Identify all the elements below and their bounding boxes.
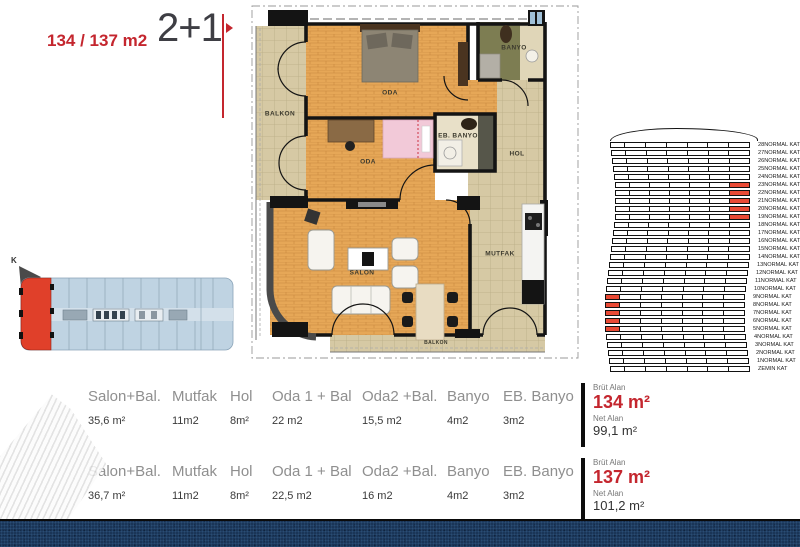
elevation-floor-row: 26NORMAL KAT bbox=[596, 157, 800, 165]
elevation-unit-cell bbox=[625, 151, 646, 155]
elevation-unit-cell bbox=[707, 255, 728, 259]
elevation-unit-cell bbox=[729, 167, 749, 171]
elevation-unit-cell bbox=[664, 351, 685, 355]
elevation-unit-cell bbox=[619, 327, 640, 331]
elevation-unit-cell bbox=[622, 271, 643, 275]
elevation-unit-cell bbox=[729, 239, 750, 243]
elevation-unit-cell bbox=[611, 143, 624, 147]
spec-column-value: 36,7 m² bbox=[88, 490, 172, 502]
elevation-unit-cell bbox=[689, 191, 709, 195]
elevation-unit-cell bbox=[668, 175, 688, 179]
elevation-unit-cell bbox=[709, 207, 729, 211]
room-label-mutfak: MUTFAK bbox=[485, 251, 514, 258]
spec-column: Oda 1 + Bal22 m2 bbox=[272, 388, 362, 427]
elevation-unit-cell bbox=[706, 263, 727, 267]
elevation-unit-cell bbox=[702, 295, 723, 299]
elevation-unit-cell bbox=[642, 279, 663, 283]
elevation-unit-cell bbox=[688, 239, 709, 243]
elevation-unit-cell bbox=[729, 183, 749, 187]
elevation-unit-cell bbox=[616, 191, 629, 195]
elevation-unit-cell bbox=[702, 319, 723, 323]
elevation-unit-cell bbox=[724, 287, 745, 291]
elevation-unit-cell bbox=[669, 183, 689, 187]
brochure-page: 134 / 137 m2 2+1 bbox=[0, 0, 800, 547]
elevation-unit-cell bbox=[649, 199, 669, 203]
room-label-balkon-left: BALKON bbox=[265, 111, 295, 118]
elevation-floor-label: 16NORMAL KAT bbox=[758, 238, 800, 244]
elevation-unit-cell bbox=[625, 247, 646, 251]
elevation-unit-cell bbox=[611, 367, 624, 371]
elevation-unit-cell bbox=[723, 311, 744, 315]
net-alan-label: Net Alan bbox=[593, 414, 650, 423]
elevation-unit-cell bbox=[729, 191, 749, 195]
elevation-unit-cell bbox=[669, 199, 689, 203]
elevation-unit-cell bbox=[668, 231, 688, 235]
elevation-floor-label: ZEMIN KAT bbox=[758, 366, 787, 372]
elevation-unit-cell bbox=[666, 247, 687, 251]
brut-alan-value: 134 m² bbox=[593, 392, 650, 412]
elevation-floor-label: 3NORMAL KAT bbox=[755, 342, 794, 348]
bed-oda-mid bbox=[383, 120, 433, 158]
elevation-unit-cell bbox=[621, 279, 642, 283]
elevation-floor-label: 24NORMAL KAT bbox=[758, 174, 800, 180]
elevation-unit-cell bbox=[725, 343, 746, 347]
brut-alan-label: Brüt Alan bbox=[593, 383, 650, 392]
elevation-unit-cell bbox=[666, 255, 687, 259]
elevation-floor-label: 1NORMAL KAT bbox=[757, 358, 796, 364]
elevation-unit-cell bbox=[682, 295, 703, 299]
spec-column-header: Hol bbox=[230, 388, 272, 405]
elevation-diagram: 28NORMAL KAT27NORMAL KAT26NORMAL KAT25NO… bbox=[596, 128, 800, 373]
spec-column-header: EB. Banyo bbox=[503, 463, 583, 480]
spec-column-header: Salon+Bal. bbox=[88, 388, 172, 405]
elevation-unit-cell bbox=[709, 191, 729, 195]
elevation-floor-row: 3NORMAL KAT bbox=[596, 341, 800, 349]
site-key-plan: K bbox=[5, 256, 240, 360]
spec-column: Oda2 +Bal.15,5 m2 bbox=[362, 388, 447, 427]
elevation-unit-cell bbox=[725, 279, 746, 283]
elevation-unit-cell bbox=[648, 223, 668, 227]
room-label-hol: HOL bbox=[510, 151, 525, 158]
elevation-unit-cell bbox=[727, 263, 748, 267]
elevation-unit-cell bbox=[611, 255, 624, 259]
elevation-unit-cell bbox=[616, 183, 629, 187]
elevation-unit-cell bbox=[689, 223, 709, 227]
elevation-unit-cell bbox=[687, 255, 708, 259]
elevation-floor-label: 28NORMAL KAT bbox=[758, 142, 800, 148]
floor-plan-drawing bbox=[250, 4, 580, 362]
elevation-unit-cell bbox=[643, 351, 664, 355]
elevation-floor-label: 27NORMAL KAT bbox=[758, 150, 800, 156]
elevation-unit-cell bbox=[666, 151, 687, 155]
elevation-unit-cell bbox=[619, 311, 640, 315]
spec-column-value: 22 m2 bbox=[272, 415, 362, 427]
spec-column: Salon+Bal.35,6 m² bbox=[88, 388, 172, 427]
elevation-floor-row: 10NORMAL KAT bbox=[596, 285, 800, 293]
room-label-oda-mid: ODA bbox=[360, 159, 376, 166]
site-key-plan-drawing bbox=[5, 256, 240, 360]
spec-column-value: 3m2 bbox=[503, 490, 583, 502]
elevation-unit-cell bbox=[615, 175, 628, 179]
elevation-unit-cell bbox=[619, 319, 640, 323]
elevation-unit-cell bbox=[622, 351, 643, 355]
elevation-floor-row: 23NORMAL KAT bbox=[596, 181, 800, 189]
elevation-unit-cell bbox=[707, 367, 728, 371]
elevation-unit-cell bbox=[727, 359, 748, 363]
wardrobe bbox=[458, 42, 468, 86]
elevation-unit-cell bbox=[687, 367, 708, 371]
spec-column-header: Banyo bbox=[447, 388, 503, 405]
spec-column-value: 3m2 bbox=[503, 415, 583, 427]
room-label-oda-top: ODA bbox=[382, 90, 398, 97]
elevation-floor-row: 5NORMAL KAT bbox=[596, 325, 800, 333]
elevation-unit-cell bbox=[669, 207, 689, 211]
spec-table-137: Salon+Bal.36,7 m²Mutfak11m2Hol8m²Oda 1 +… bbox=[88, 463, 788, 502]
elevation-unit-cell bbox=[626, 239, 647, 243]
elevation-unit-cell bbox=[663, 279, 684, 283]
net-alan-value: 99,1 m² bbox=[593, 423, 650, 438]
elevation-floor-label: 2NORMAL KAT bbox=[756, 350, 795, 356]
spec-column: Mutfak11m2 bbox=[172, 463, 230, 502]
elevation-floor-label: 6NORMAL KAT bbox=[753, 318, 792, 324]
spec-column-value: 22,5 m2 bbox=[272, 490, 362, 502]
elevation-unit-cell bbox=[661, 311, 682, 315]
elevation-unit-cell bbox=[647, 167, 667, 171]
elevation-floor-row: 17NORMAL KAT bbox=[596, 229, 800, 237]
elevation-unit-cell bbox=[684, 279, 705, 283]
elevation-unit-cell bbox=[645, 255, 666, 259]
elevation-unit-cell bbox=[609, 351, 622, 355]
elevation-unit-cell bbox=[620, 335, 641, 339]
elevation-unit-cell bbox=[646, 151, 667, 155]
elevation-floor-label: 15NORMAL KAT bbox=[758, 246, 800, 252]
elevation-unit-cell bbox=[621, 343, 642, 347]
elevation-unit-cell bbox=[616, 215, 629, 219]
elevation-floor-label: 22NORMAL KAT bbox=[758, 190, 800, 196]
highlighted-unit bbox=[21, 278, 51, 350]
elevation-unit-cell bbox=[610, 263, 623, 267]
bed-oda-top bbox=[360, 24, 420, 82]
elevation-floor-row: ZEMIN KAT bbox=[596, 365, 800, 373]
accent-vertical-line bbox=[222, 14, 224, 118]
elevation-unit-cell bbox=[702, 327, 723, 331]
elevation-unit-cell bbox=[726, 351, 747, 355]
elevation-unit-cell bbox=[687, 151, 708, 155]
elevation-unit-cell bbox=[684, 343, 705, 347]
spec-column: EB. Banyo3m2 bbox=[503, 388, 583, 427]
accent-arrow-icon bbox=[226, 23, 233, 33]
elevation-unit-cell bbox=[688, 231, 708, 235]
spec-column-header: EB. Banyo bbox=[503, 388, 583, 405]
elevation-unit-cell bbox=[641, 287, 662, 291]
spec-column-value: 11m2 bbox=[172, 490, 230, 502]
room-label-salon: SALON bbox=[350, 270, 375, 277]
elevation-unit-cell bbox=[729, 223, 749, 227]
elevation-unit-cell bbox=[627, 231, 647, 235]
elevation-unit-cell bbox=[629, 183, 649, 187]
elevation-unit-cell bbox=[616, 199, 629, 203]
elevation-unit-cell bbox=[689, 175, 709, 179]
elevation-unit-cell bbox=[709, 183, 729, 187]
elevation-unit-cell bbox=[705, 351, 726, 355]
elevation-floor-row: 28NORMAL KAT bbox=[596, 141, 800, 149]
elevation-floor-label: 9NORMAL KAT bbox=[753, 294, 792, 300]
elevation-unit-cell bbox=[649, 215, 669, 219]
elevation-floor-row: 27NORMAL KAT bbox=[596, 149, 800, 157]
elevation-unit-cell bbox=[667, 159, 688, 163]
net-alan-label: Net Alan bbox=[593, 489, 650, 498]
elevation-unit-cell bbox=[661, 327, 682, 331]
elevation-unit-cell bbox=[729, 159, 750, 163]
elevation-floor-label: 11NORMAL KAT bbox=[755, 278, 797, 284]
elevation-unit-cell bbox=[689, 215, 709, 219]
elevation-unit-cell bbox=[624, 255, 645, 259]
elevation-unit-cell bbox=[723, 327, 744, 331]
elevation-floor-row: 6NORMAL KAT bbox=[596, 317, 800, 325]
brut-alan-value: 137 m² bbox=[593, 467, 650, 487]
spec-column: Banyo4m2 bbox=[447, 463, 503, 502]
elevation-unit-cell bbox=[668, 223, 688, 227]
elevation-unit-cell bbox=[702, 311, 723, 315]
elevation-floor-row: 21NORMAL KAT bbox=[596, 197, 800, 205]
spec-columns: Salon+Bal.36,7 m²Mutfak11m2Hol8m²Oda 1 +… bbox=[88, 463, 788, 502]
spec-column: Oda2 +Bal.16 m2 bbox=[362, 463, 447, 502]
spec-column: Hol8m² bbox=[230, 463, 272, 502]
elevation-unit-cell bbox=[682, 303, 703, 307]
elevation-unit-cell bbox=[729, 231, 749, 235]
elevation-unit-cell bbox=[702, 303, 723, 307]
elevation-floor-label: 17NORMAL KAT bbox=[758, 230, 800, 236]
elevation-floor-label: 21NORMAL KAT bbox=[758, 198, 800, 204]
spec-column-value: 16 m2 bbox=[362, 490, 447, 502]
elevation-unit-cell bbox=[606, 327, 619, 331]
spec-column-header: Mutfak bbox=[172, 388, 230, 405]
elevation-floor-row: 2NORMAL KAT bbox=[596, 349, 800, 357]
elevation-unit-cell bbox=[667, 239, 688, 243]
elevation-unit-cell bbox=[640, 311, 661, 315]
elevation-unit-cell bbox=[723, 303, 744, 307]
elevation-floor-row: 25NORMAL KAT bbox=[596, 165, 800, 173]
elevation-unit-cell bbox=[728, 143, 749, 147]
elevation-unit-cell bbox=[723, 295, 744, 299]
elevation-floor-row: 22NORMAL KAT bbox=[596, 189, 800, 197]
elevation-rows: 28NORMAL KAT27NORMAL KAT26NORMAL KAT25NO… bbox=[596, 141, 800, 373]
elevation-floor-row: 19NORMAL KAT bbox=[596, 213, 800, 221]
elevation-unit-cell bbox=[649, 183, 669, 187]
elevation-floor-row: 18NORMAL KAT bbox=[596, 221, 800, 229]
elevation-floor-label: 18NORMAL KAT bbox=[758, 222, 800, 228]
elevation-roof-cap bbox=[610, 128, 758, 141]
elevation-unit-cell bbox=[708, 239, 729, 243]
elevation-unit-cell bbox=[647, 239, 668, 243]
spec-column-value: 4m2 bbox=[447, 490, 503, 502]
elevation-unit-cell bbox=[687, 247, 708, 251]
elevation-unit-cell bbox=[606, 295, 619, 299]
spec-columns: Salon+Bal.35,6 m²Mutfak11m2Hol8m²Oda 1 +… bbox=[88, 388, 788, 427]
elevation-unit-cell bbox=[612, 151, 625, 155]
elevation-unit-cell bbox=[687, 143, 708, 147]
elevation-unit-cell bbox=[685, 351, 706, 355]
elevation-unit-cell bbox=[619, 295, 640, 299]
elevation-unit-cell bbox=[729, 199, 749, 203]
elevation-unit-cell bbox=[708, 231, 728, 235]
elevation-unit-cell bbox=[709, 215, 729, 219]
elevation-floor-label: 26NORMAL KAT bbox=[758, 158, 800, 164]
elevation-floor-row: 1NORMAL KAT bbox=[596, 357, 800, 365]
elevation-unit-cell bbox=[726, 271, 747, 275]
elevation-unit-cell bbox=[669, 191, 689, 195]
elevation-unit-cell bbox=[623, 359, 644, 363]
elevation-floor-label: 25NORMAL KAT bbox=[758, 166, 800, 172]
spec-column-value: 35,6 m² bbox=[88, 415, 172, 427]
spec-column: Oda 1 + Bal22,5 m2 bbox=[272, 463, 362, 502]
elevation-floor-row: 16NORMAL KAT bbox=[596, 237, 800, 245]
elevation-unit-cell bbox=[728, 247, 749, 251]
elevation-unit-cell bbox=[723, 319, 744, 323]
elevation-unit-cell bbox=[724, 335, 745, 339]
elevation-unit-cell bbox=[703, 335, 724, 339]
room-label-banyo: BANYO bbox=[501, 45, 526, 52]
elevation-unit-cell bbox=[629, 199, 649, 203]
elevation-floor-label: 23NORMAL KAT bbox=[758, 182, 800, 188]
elevation-unit-cell bbox=[686, 359, 707, 363]
elevation-floor-label: 19NORMAL KAT bbox=[758, 214, 800, 220]
spec-column: EB. Banyo3m2 bbox=[503, 463, 583, 502]
elevation-unit-cell bbox=[610, 359, 623, 363]
elevation-unit-cell bbox=[707, 143, 728, 147]
elevation-unit-cell bbox=[649, 207, 669, 211]
elevation-floor-row: 14NORMAL KAT bbox=[596, 253, 800, 261]
elevation-unit-cell bbox=[629, 215, 649, 219]
elevation-unit-cell bbox=[624, 143, 645, 147]
elevation-unit-cell bbox=[640, 303, 661, 307]
elevation-floor-label: 8NORMAL KAT bbox=[753, 302, 792, 308]
elevation-unit-cell bbox=[608, 343, 621, 347]
spec-column-value: 11m2 bbox=[172, 415, 230, 427]
elevation-unit-cell bbox=[619, 303, 640, 307]
elevation-unit-cell bbox=[646, 247, 667, 251]
elevation-floor-row: 15NORMAL KAT bbox=[596, 245, 800, 253]
elevation-unit-cell bbox=[729, 175, 749, 179]
elevation-unit-cell bbox=[628, 223, 648, 227]
elevation-unit-cell bbox=[606, 303, 619, 307]
elevation-unit-cell bbox=[682, 311, 703, 315]
footer-bar bbox=[0, 519, 800, 547]
elevation-unit-cell bbox=[628, 175, 648, 179]
elevation-unit-cell bbox=[644, 263, 665, 267]
spec-column: Banyo4m2 bbox=[447, 388, 503, 427]
spec-column-header: Mutfak bbox=[172, 463, 230, 480]
elevation-unit-cell bbox=[666, 143, 687, 147]
elevation-unit-cell bbox=[729, 207, 749, 211]
elevation-floor-row: 11NORMAL KAT bbox=[596, 277, 800, 285]
elevation-unit-cell bbox=[704, 343, 725, 347]
elevation-unit-cell bbox=[607, 335, 620, 339]
elevation-unit-cell bbox=[661, 303, 682, 307]
elevation-floor-row: 24NORMAL KAT bbox=[596, 173, 800, 181]
elevation-unit-cell bbox=[708, 151, 729, 155]
elevation-unit-cell bbox=[615, 223, 628, 227]
spec-column-header: Oda2 +Bal. bbox=[362, 388, 447, 405]
brut-alan-label: Brüt Alan bbox=[593, 458, 650, 467]
elevation-floor-row: 12NORMAL KAT bbox=[596, 269, 800, 277]
elevation-unit-cell bbox=[644, 359, 665, 363]
elevation-floor-label: 12NORMAL KAT bbox=[756, 270, 798, 276]
elevation-unit-cell bbox=[685, 271, 706, 275]
elevation-unit-cell bbox=[686, 263, 707, 267]
elevation-unit-cell bbox=[666, 367, 687, 371]
totals-divider-bar bbox=[581, 458, 585, 522]
elevation-floor-row: 8NORMAL KAT bbox=[596, 301, 800, 309]
elevation-unit-cell bbox=[627, 167, 647, 171]
elevation-unit-cell bbox=[649, 191, 669, 195]
elevation-unit-cell bbox=[641, 335, 662, 339]
elevation-unit-cell bbox=[704, 279, 725, 283]
elevation-unit-cell bbox=[661, 319, 682, 323]
elevation-floor-row: 20NORMAL KAT bbox=[596, 205, 800, 213]
elevation-unit-cell bbox=[708, 167, 728, 171]
elevation-unit-cell bbox=[703, 287, 724, 291]
unit-type-title: 2+1 bbox=[157, 6, 222, 51]
elevation-unit-cell bbox=[683, 287, 704, 291]
spec-column-header: Oda 1 + Bal bbox=[272, 388, 362, 405]
elevation-unit-cell bbox=[706, 359, 727, 363]
elevation-floor-label: 14NORMAL KAT bbox=[758, 254, 800, 260]
elevation-unit-cell bbox=[682, 327, 703, 331]
elevation-unit-cell bbox=[705, 271, 726, 275]
room-label-eb-banyo: EB. BANYO bbox=[438, 133, 478, 140]
elevation-unit-cell bbox=[664, 271, 685, 275]
room-label-balkon-bottom: BALKON bbox=[424, 340, 448, 346]
elevation-floor-label: 5NORMAL KAT bbox=[753, 326, 792, 332]
spec-column: Mutfak11m2 bbox=[172, 388, 230, 427]
elevation-unit-cell bbox=[728, 367, 749, 371]
spec-column-value: 4m2 bbox=[447, 415, 503, 427]
spec-column: Hol8m² bbox=[230, 388, 272, 427]
elevation-unit-cell bbox=[623, 263, 644, 267]
elevation-unit-cell bbox=[624, 367, 645, 371]
elevation-floor-label: 4NORMAL KAT bbox=[754, 334, 793, 340]
elevation-unit-cell bbox=[626, 159, 647, 163]
elevation-floor-row: 4NORMAL KAT bbox=[596, 333, 800, 341]
elevation-unit-cell bbox=[728, 255, 749, 259]
elevation-unit-cell bbox=[629, 191, 649, 195]
elevation-unit-cell bbox=[708, 159, 729, 163]
elevation-unit-cell bbox=[612, 247, 625, 251]
elevation-unit-cell bbox=[640, 319, 661, 323]
elevation-unit-cell bbox=[683, 335, 704, 339]
elevation-unit-cell bbox=[689, 207, 709, 211]
elevation-unit-cell bbox=[662, 335, 683, 339]
elevation-unit-cell bbox=[648, 175, 668, 179]
spec-column-header: Oda 1 + Bal bbox=[272, 463, 362, 480]
elevation-unit-cell bbox=[645, 143, 666, 147]
elevation-unit-cell bbox=[661, 295, 682, 299]
elevation-unit-cell bbox=[645, 367, 666, 371]
elevation-unit-cell bbox=[729, 215, 749, 219]
elevation-unit-cell bbox=[647, 231, 667, 235]
spec-table-134: Salon+Bal.35,6 m²Mutfak11m2Hol8m²Oda 1 +… bbox=[88, 388, 788, 427]
elevation-unit-cell bbox=[708, 247, 729, 251]
elevation-unit-cell bbox=[629, 207, 649, 211]
spec-column-header: Hol bbox=[230, 463, 272, 480]
elevation-unit-cell bbox=[688, 167, 708, 171]
spec-column-value: 8m² bbox=[230, 415, 272, 427]
elevation-unit-cell bbox=[689, 183, 709, 187]
elevation-unit-cell bbox=[614, 231, 627, 235]
unit-area-title: 134 / 137 m2 bbox=[47, 31, 147, 51]
elevation-unit-cell bbox=[640, 295, 661, 299]
